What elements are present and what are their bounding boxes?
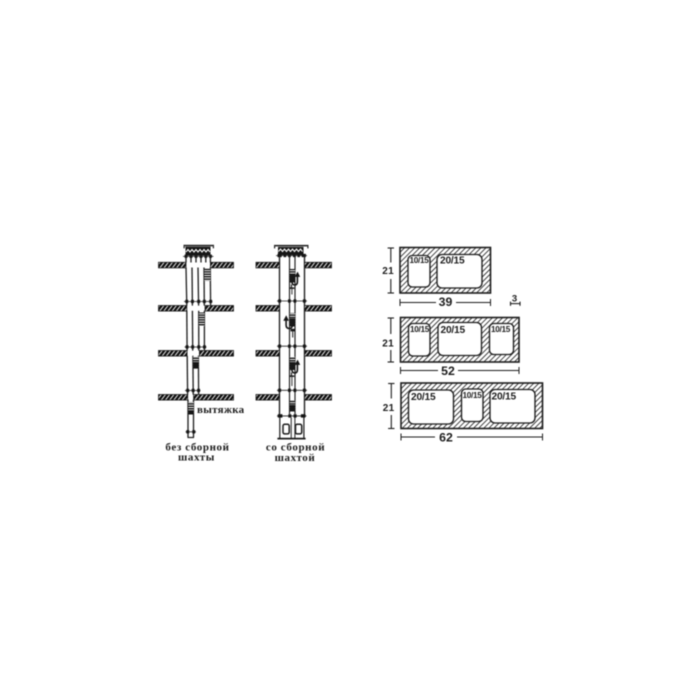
- svg-text:шахтой: шахтой: [275, 452, 316, 464]
- svg-text:39: 39: [439, 295, 453, 309]
- svg-text:10/15: 10/15: [410, 256, 430, 265]
- svg-text:21: 21: [383, 403, 395, 414]
- svg-text:20/15: 20/15: [441, 325, 466, 336]
- svg-text:62: 62: [439, 430, 453, 444]
- svg-text:21: 21: [382, 339, 394, 350]
- svg-text:10/15: 10/15: [410, 325, 430, 334]
- svg-text:20/15: 20/15: [492, 391, 517, 402]
- svg-text:20/15: 20/15: [411, 392, 436, 403]
- svg-text:шахты: шахты: [178, 452, 215, 464]
- svg-text:10/15: 10/15: [463, 391, 483, 400]
- svg-text:вытяжка: вытяжка: [197, 404, 245, 416]
- svg-text:52: 52: [441, 364, 455, 378]
- svg-text:20/15: 20/15: [440, 256, 465, 267]
- svg-text:10/15: 10/15: [491, 325, 511, 334]
- svg-text:21: 21: [382, 266, 394, 277]
- svg-text:3: 3: [512, 294, 517, 305]
